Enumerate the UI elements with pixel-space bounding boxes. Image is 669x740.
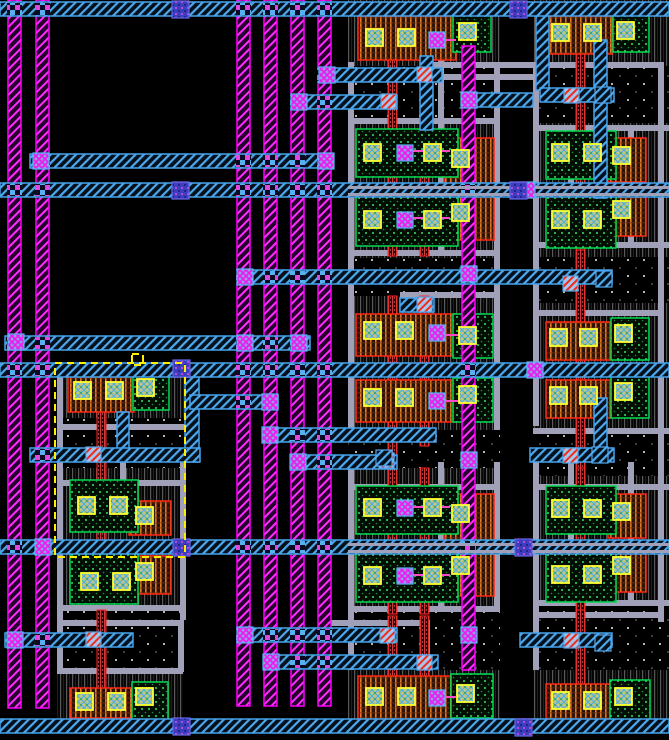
active-contact xyxy=(110,497,127,514)
bus-rail-crossing xyxy=(263,184,278,196)
active-contact xyxy=(580,329,597,346)
bus-rail-crossing xyxy=(263,337,278,349)
bus-rail-crossing xyxy=(317,541,332,553)
metal1-bus xyxy=(0,719,669,733)
via2-contact xyxy=(429,393,445,409)
metal1-contact-box xyxy=(595,87,611,103)
active-contact xyxy=(396,389,413,406)
via2-contact xyxy=(397,212,413,228)
via2-contact xyxy=(263,654,279,670)
bus-rail-crossing xyxy=(35,337,50,349)
metal1-contact-box xyxy=(596,271,612,287)
gray-route-h xyxy=(533,310,660,316)
bus-rail-crossing xyxy=(263,271,278,283)
gray-route-h xyxy=(57,668,183,674)
via3-contact xyxy=(515,539,532,556)
bus-rail-crossing xyxy=(317,364,332,376)
gray-route-h xyxy=(330,620,428,626)
bus-rail-crossing xyxy=(236,541,251,553)
active-contact xyxy=(617,22,634,39)
metal1-bus xyxy=(0,2,669,16)
active-contact xyxy=(136,507,153,524)
via3-contact xyxy=(173,718,190,735)
active-contact xyxy=(424,567,441,584)
via2-contact xyxy=(461,452,477,468)
bus-rail-crossing xyxy=(7,541,22,553)
active-contact xyxy=(459,23,476,40)
via2-contact xyxy=(397,500,413,516)
metal1-bus xyxy=(0,363,669,377)
metal2-rail xyxy=(8,0,21,708)
active-contact xyxy=(396,322,413,339)
gray-route-v xyxy=(658,62,664,622)
via2-contact xyxy=(318,153,334,169)
active-contact xyxy=(364,567,381,584)
via3-contact xyxy=(515,719,532,736)
poly-contact xyxy=(563,448,578,463)
gray-route-h xyxy=(428,74,546,80)
metal1-contact-box xyxy=(595,635,611,651)
bus-rail-crossing xyxy=(263,3,278,15)
bus-rail-crossing xyxy=(7,3,22,15)
metal1-bus xyxy=(30,154,332,168)
poly-contact xyxy=(417,297,432,312)
active-contact xyxy=(364,389,381,406)
via2-contact xyxy=(397,568,413,584)
active-contact xyxy=(364,322,381,339)
bus-rail-crossing xyxy=(236,3,251,15)
via2-contact xyxy=(527,362,543,378)
bus-rail-crossing xyxy=(263,629,278,641)
active-contact xyxy=(457,685,474,702)
via2-contact xyxy=(7,632,23,648)
bus-rail-crossing xyxy=(290,629,305,641)
active-contact xyxy=(584,566,601,583)
via2-contact xyxy=(262,394,278,410)
active-contact xyxy=(452,204,469,221)
active-contact xyxy=(76,693,93,710)
layout-viewport xyxy=(0,0,669,740)
active-contact xyxy=(366,29,383,46)
active-contact xyxy=(137,379,154,396)
bus-rail-crossing xyxy=(290,155,305,167)
active-contact xyxy=(552,692,569,709)
active-contact xyxy=(584,144,601,161)
poly-contact xyxy=(380,628,395,643)
poly-contact xyxy=(381,94,396,109)
bus-rail-crossing xyxy=(290,429,305,441)
active-contact xyxy=(552,566,569,583)
active-contact xyxy=(459,386,476,403)
active-contact xyxy=(613,147,630,164)
active-contact xyxy=(108,693,125,710)
active-contact xyxy=(398,688,415,705)
active-contact xyxy=(613,503,630,520)
via2-contact xyxy=(397,145,413,161)
gray-route-v xyxy=(57,364,63,620)
active-contact xyxy=(366,688,383,705)
bus-rail-crossing xyxy=(290,656,305,668)
via2-contact xyxy=(35,539,51,555)
metal1-strap-v xyxy=(594,40,607,198)
active-contact xyxy=(584,24,601,41)
poly-contact xyxy=(417,67,432,82)
bus-rail-crossing xyxy=(236,364,251,376)
metal1-strap-v xyxy=(536,10,549,90)
metal1-bus xyxy=(5,633,133,647)
bus-rail-crossing xyxy=(236,396,251,408)
bus-gray-dash xyxy=(348,193,669,196)
poly-contact xyxy=(86,632,101,647)
bus-rail-crossing xyxy=(317,656,332,668)
active-contact xyxy=(580,387,597,404)
poly-contact xyxy=(417,655,432,670)
active-contact xyxy=(550,329,567,346)
metal2-rail xyxy=(36,0,49,708)
active-contact xyxy=(615,325,632,342)
via2-contact xyxy=(429,690,445,706)
via2-contact xyxy=(8,334,24,350)
bus-rail-crossing xyxy=(35,449,50,461)
active-contact xyxy=(81,573,98,590)
active-contact xyxy=(452,505,469,522)
via2-contact xyxy=(291,94,307,110)
active-contact xyxy=(136,563,153,580)
gray-route-h xyxy=(57,620,183,626)
active-contact xyxy=(584,500,601,517)
via2-contact xyxy=(237,269,253,285)
bus-rail-crossing xyxy=(263,364,278,376)
active-contact xyxy=(584,692,601,709)
bus-gray-dash xyxy=(348,550,669,553)
active-contact xyxy=(613,557,630,574)
metal1-contact-box xyxy=(376,450,392,466)
active-contact xyxy=(364,499,381,516)
active-contact xyxy=(615,688,632,705)
active-contact xyxy=(74,382,91,399)
bus-gray-dash xyxy=(348,543,669,546)
layout-canvas[interactable] xyxy=(0,0,669,740)
via2-contact xyxy=(429,32,445,48)
active-contact xyxy=(452,557,469,574)
bus-rail-crossing xyxy=(290,364,305,376)
metal1-contact-box xyxy=(592,447,608,463)
active-contact xyxy=(615,383,632,400)
via2-contact xyxy=(461,266,477,282)
poly-contact xyxy=(86,447,101,462)
active-contact xyxy=(552,144,569,161)
bus-rail-crossing xyxy=(290,541,305,553)
poly-contact xyxy=(564,88,579,103)
active-contact xyxy=(550,387,567,404)
gray-route-v xyxy=(178,620,184,672)
bus-rail-crossing xyxy=(35,364,50,376)
bus-rail-crossing xyxy=(35,634,50,646)
bus-rail-crossing xyxy=(290,3,305,15)
active-contact xyxy=(459,327,476,344)
active-contact xyxy=(78,497,95,514)
active-contact xyxy=(613,201,630,218)
active-contact xyxy=(552,500,569,517)
bus-gray-dash xyxy=(348,186,669,189)
via2-contact xyxy=(33,153,49,169)
bus-rail-crossing xyxy=(236,184,251,196)
active-contact xyxy=(424,499,441,516)
metal2-rail xyxy=(237,0,250,706)
via3-contact xyxy=(173,539,190,556)
via2-contact xyxy=(237,335,253,351)
active-contact xyxy=(552,211,569,228)
via2-contact xyxy=(319,67,335,83)
active-contact xyxy=(106,382,123,399)
gray-route-h xyxy=(533,612,660,618)
bus-rail-crossing xyxy=(7,364,22,376)
active-contact xyxy=(584,211,601,228)
via2-contact xyxy=(461,627,477,643)
active-contact xyxy=(136,688,153,705)
active-contact xyxy=(552,24,569,41)
bus-rail-crossing xyxy=(317,184,332,196)
bus-rail-crossing xyxy=(317,3,332,15)
poly-contact xyxy=(563,276,578,291)
via2-contact xyxy=(429,325,445,341)
metal1-bus xyxy=(475,93,533,107)
bus-rail-crossing xyxy=(317,456,332,468)
via2-contact xyxy=(237,627,253,643)
active-contact xyxy=(424,211,441,228)
bus-rail-crossing xyxy=(236,155,251,167)
bus-rail-crossing xyxy=(317,429,332,441)
via2-contact xyxy=(290,454,306,470)
active-contact xyxy=(398,29,415,46)
bus-rail-crossing xyxy=(290,184,305,196)
via2-contact xyxy=(461,92,477,108)
metal2-rail xyxy=(264,0,277,706)
bus-rail-crossing xyxy=(7,184,22,196)
gray-route-v xyxy=(494,462,500,610)
bus-rail-crossing xyxy=(290,271,305,283)
bus-rail-crossing xyxy=(263,155,278,167)
via2-contact xyxy=(291,335,307,351)
metal1-bus xyxy=(264,428,436,442)
bus-rail-crossing xyxy=(317,271,332,283)
via3-contact xyxy=(172,1,189,18)
active-contact xyxy=(424,144,441,161)
bus-rail-crossing xyxy=(35,3,50,15)
bus-rail-crossing xyxy=(317,629,332,641)
poly-contact xyxy=(564,633,579,648)
via2-contact xyxy=(262,427,278,443)
metal2-rail xyxy=(462,46,475,670)
via3-contact xyxy=(510,182,527,199)
via3-contact xyxy=(510,1,527,18)
gray-route-h xyxy=(57,605,183,611)
active-contact xyxy=(113,573,130,590)
bus-rail-crossing xyxy=(461,364,476,376)
bus-rail-crossing xyxy=(35,184,50,196)
bus-rail-crossing xyxy=(263,541,278,553)
bus-rail-crossing xyxy=(317,96,332,108)
via3-contact xyxy=(172,182,189,199)
gray-route-h xyxy=(400,292,494,298)
active-contact xyxy=(364,144,381,161)
active-contact xyxy=(452,150,469,167)
active-contact xyxy=(364,211,381,228)
